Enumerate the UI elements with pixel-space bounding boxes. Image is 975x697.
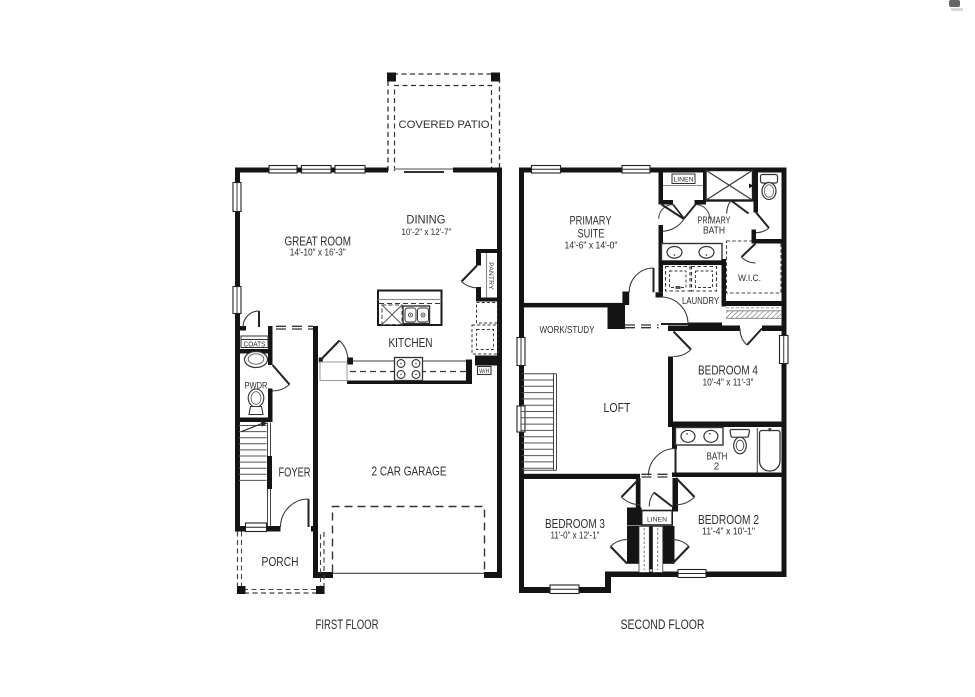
svg-text:2 CAR GARAGE: 2 CAR GARAGE: [372, 465, 447, 479]
svg-text:DINING: DINING: [406, 215, 445, 227]
svg-text:COVERED PATIO: COVERED PATIO: [399, 119, 490, 131]
svg-text:COATS: COATS: [244, 342, 266, 349]
svg-text:LINEN: LINEN: [674, 177, 694, 184]
svg-text:10'-2" x 12'-7": 10'-2" x 12'-7": [401, 227, 451, 238]
svg-text:WORK/STUDY: WORK/STUDY: [540, 324, 595, 336]
svg-text:W/H: W/H: [479, 369, 489, 375]
svg-text:LAUNDRY: LAUNDRY: [682, 296, 719, 307]
svg-text:PANTRY: PANTRY: [487, 262, 494, 290]
svg-text:10'-4" x 11'-3": 10'-4" x 11'-3": [703, 378, 754, 389]
svg-text:GREAT ROOM: GREAT ROOM: [284, 234, 351, 248]
svg-text:SUITE: SUITE: [578, 229, 605, 241]
svg-text:2: 2: [714, 462, 720, 473]
svg-text:BEDROOM 4: BEDROOM 4: [698, 364, 758, 378]
svg-text:BATH: BATH: [703, 226, 725, 237]
svg-text:BEDROOM 3: BEDROOM 3: [545, 517, 605, 531]
svg-text:LINEN: LINEN: [647, 517, 667, 524]
svg-text:FOYER: FOYER: [279, 466, 311, 480]
svg-text:FIRST FLOOR: FIRST FLOOR: [316, 617, 379, 632]
svg-text:LOFT: LOFT: [604, 400, 631, 415]
svg-text:W.I.C.: W.I.C.: [738, 273, 761, 284]
svg-text:11'-0" x 12'-1": 11'-0" x 12'-1": [551, 531, 600, 542]
svg-text:14'-10" x 16'-3": 14'-10" x 16'-3": [290, 248, 346, 259]
svg-text:PRIMARY: PRIMARY: [570, 216, 612, 228]
svg-text:BEDROOM 2: BEDROOM 2: [698, 513, 759, 527]
svg-text:11'-4" x 10'-1": 11'-4" x 10'-1": [702, 527, 755, 538]
svg-text:KITCHEN: KITCHEN: [389, 336, 433, 350]
svg-text:14'-6" x 14'-0": 14'-6" x 14'-0": [565, 241, 618, 252]
svg-text:PORCH: PORCH: [262, 555, 299, 569]
svg-text:SECOND FLOOR: SECOND FLOOR: [621, 617, 705, 632]
